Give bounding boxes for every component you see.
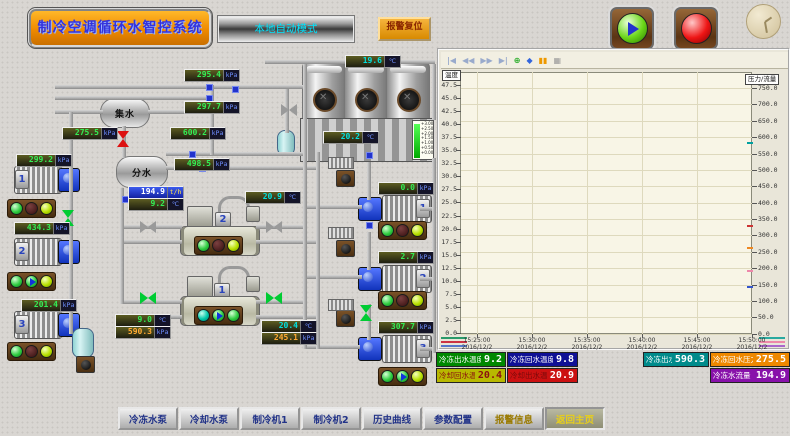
- pipe-segment: [166, 152, 306, 156]
- right-tick-label: 300.0: [758, 232, 790, 239]
- status-label: 冷冻水流量: [711, 370, 753, 381]
- right-tick-label: 750.0: [758, 85, 790, 92]
- gauge-value: 434.3: [15, 223, 53, 234]
- status-light-run: [212, 309, 225, 322]
- left-tick-label: 2.5: [439, 317, 457, 324]
- toolbar-first-icon[interactable]: |◀: [447, 56, 456, 65]
- right-tick-label: 450.0: [758, 183, 790, 190]
- toolbar-pause-icon[interactable]: ▮▮: [539, 56, 548, 65]
- status-light-on: [381, 370, 394, 383]
- pipe-segment: [367, 162, 371, 200]
- status-light-off: [396, 294, 409, 307]
- tick-mark: [456, 189, 461, 190]
- tower-fan-icon: [397, 88, 421, 112]
- gridline-h: [461, 186, 752, 187]
- collector-tank-label: 集水: [115, 107, 135, 120]
- chw-pump-1-lights: [7, 199, 56, 218]
- status-light-on: [197, 239, 210, 252]
- gauge-distributor-pressure-1: 600.2kPa: [170, 127, 226, 140]
- gauge-unit: kPa: [209, 128, 225, 139]
- gauge-unit: ℃: [384, 56, 400, 67]
- filter-vessel: [72, 328, 94, 358]
- gauge-value: 498.5: [175, 159, 213, 170]
- pipe-segment: [55, 110, 103, 114]
- toolbar-grid-icon[interactable]: ▦: [553, 56, 561, 65]
- left-tick-label: 47.5: [439, 82, 457, 89]
- tick-mark: [752, 137, 757, 138]
- chw-pump-3-lights: [7, 342, 56, 361]
- tick-mark: [456, 255, 461, 256]
- x-tick-time: 15:25:00: [464, 337, 491, 344]
- chart-toolbar: |◀◀◀▶▶▶|⊕◆▮▮▦: [441, 52, 788, 69]
- gauge-unit: kPa: [60, 300, 76, 311]
- indicator-lamp-off: [336, 310, 355, 327]
- status-value: 9.2: [481, 354, 505, 365]
- gauge-unit: kPa: [223, 70, 239, 81]
- gauge-tower-inlet-temp: 19.6℃: [345, 55, 401, 68]
- tower-level-gauge: +3.00+2.50+2.00+1.50+1.00+0.50+0.00: [412, 120, 434, 160]
- gauge-value: 600.2: [171, 128, 209, 139]
- status-chw-return-pressure: 冷冻回水压力275.5: [710, 352, 790, 367]
- gauge-collector-pressure: 275.5kPa: [62, 127, 118, 140]
- gauge-value: 0.0: [379, 183, 417, 194]
- gauge-tower-basin-temp: 20.2℃: [323, 131, 379, 144]
- gauge-unit: kPa: [417, 322, 433, 333]
- gauge-value: 20.2: [324, 132, 362, 143]
- gauge-unit: ℃: [284, 192, 300, 203]
- status-label: 冷却出水温: [508, 370, 547, 381]
- cw-pump-1-lights: [378, 221, 427, 240]
- gauge-unit: kPa: [154, 327, 170, 338]
- status-light-on: [10, 345, 23, 358]
- x-tick-date: 2016/12/2: [627, 344, 658, 351]
- x-tick-date: 2016/12/2: [682, 344, 713, 351]
- right-tick-label: 700.0: [758, 101, 790, 108]
- pipe-segment: [367, 232, 371, 270]
- left-tick-label: 22.5: [439, 213, 457, 220]
- right-tick-label: 50.0: [758, 314, 790, 321]
- flex-connector: [328, 227, 354, 239]
- x-tick-date: 2016/12/2: [572, 344, 603, 351]
- left-tick-label: 17.5: [439, 239, 457, 246]
- cw-pump-3-lights: [378, 367, 427, 386]
- gauge-unit: ℃: [300, 321, 316, 332]
- status-light-off: [396, 224, 409, 237]
- gauge-cw-pump1-pressure: 0.0kPa: [378, 182, 434, 195]
- status-light-rdy: [40, 345, 53, 358]
- chiller1-box: [246, 276, 260, 292]
- tower-level-bar: [414, 124, 420, 158]
- status-chw-return-temp: 冷冻回水温度9.8: [507, 352, 578, 367]
- valve-green-icon[interactable]: [266, 292, 282, 304]
- status-value: 590.3: [672, 354, 708, 365]
- status-light-off: [212, 239, 225, 252]
- gauge-value: 9.0: [116, 315, 154, 326]
- x-tick-date: 2016/12/2: [462, 344, 493, 351]
- status-light-on: [381, 294, 394, 307]
- axis-marker: [747, 247, 753, 249]
- tick-mark: [456, 229, 461, 230]
- status-label: 冷冻出水温度: [437, 354, 481, 365]
- x-tick-time: 15:30:00: [519, 337, 546, 344]
- tick-mark: [752, 317, 757, 318]
- gauge-distributor-pressure-2: 498.5kPa: [174, 158, 230, 171]
- chiller2-box: [246, 206, 260, 222]
- gauge-unit: kPa: [223, 102, 239, 113]
- gauge-cooling-water-temp: 20.9℃: [245, 191, 301, 204]
- gridline-h: [461, 301, 752, 302]
- status-light-off: [25, 345, 38, 358]
- left-tick-label: 10.0: [439, 278, 457, 285]
- left-tick-label: 45.0: [439, 95, 457, 102]
- gauge-unit: kPa: [417, 252, 433, 263]
- pipe-segment: [305, 205, 362, 209]
- x-tick-time: 15:50:00: [739, 337, 766, 344]
- status-label: 冷冻回水压力: [711, 354, 753, 365]
- status-cw-return-temp: 冷却回水温20.4: [436, 368, 506, 383]
- pipe-sensor-icon: [366, 222, 373, 229]
- pipe-segment: [305, 275, 362, 279]
- right-tick-label: 400.0: [758, 200, 790, 207]
- gauge-value: 275.5: [63, 128, 101, 139]
- tick-mark: [697, 334, 698, 338]
- scada-main-screen: 制冷空调循环水智控系统 本地自动模式 报警复位 集水 分水 +3.00+2.50…: [0, 0, 790, 436]
- chw-pump-1-number: 1: [15, 170, 29, 189]
- process-diagram: 集水 分水 +3.00+2.50+2.00+1.50+1.00+0.50+0.0…: [0, 0, 437, 436]
- indicator-lamp-off: [336, 240, 355, 257]
- chw-pump-2-number: 2: [15, 242, 29, 261]
- status-label: 冷冻回水温度: [508, 354, 553, 365]
- tick-mark: [752, 186, 757, 187]
- gauge-value: 297.7: [185, 102, 223, 113]
- left-tick-label: 35.0: [439, 147, 457, 154]
- cw-pump-1-head: [358, 197, 382, 221]
- tick-mark: [456, 216, 461, 217]
- stop-button[interactable]: [672, 5, 720, 52]
- tick-mark: [456, 124, 461, 125]
- nav-return-home[interactable]: 返回主页: [545, 407, 605, 430]
- gauge-value: 2.7: [379, 252, 417, 263]
- status-light-teal: [197, 309, 210, 322]
- tick-mark: [456, 98, 461, 99]
- gauge-unit: kPa: [55, 155, 71, 166]
- pipe-segment: [55, 85, 303, 89]
- gridline-h: [461, 268, 752, 269]
- tick-mark: [752, 252, 757, 253]
- left-tick-label: 37.5: [439, 134, 457, 141]
- gauge-unit: kPa: [300, 333, 316, 344]
- bottom-navbar: 冷冻水泵 冷却水泵 制冷机1 制冷机2 历史曲线 参数配置 报警信息 返回主页: [118, 407, 605, 430]
- gauge-chw-supply-temp: 9.2℃: [128, 198, 184, 211]
- play-icon: [628, 22, 639, 36]
- indicator-lamp-off: [76, 356, 95, 373]
- pipe-segment: [432, 64, 436, 120]
- x-tick-time: 15:35:00: [574, 337, 601, 344]
- right-tick-label: 100.0: [758, 298, 790, 305]
- status-light-run: [25, 275, 38, 288]
- status-light-on: [227, 309, 240, 322]
- tick-mark: [642, 334, 643, 338]
- tick-mark: [752, 154, 757, 155]
- gauge-unit: kPa: [101, 128, 117, 139]
- tick-mark: [752, 104, 757, 105]
- trend-chart: |◀◀◀▶▶▶|⊕◆▮▮▦ 温度 压力/流量 750.0700.0650.060…: [437, 48, 790, 350]
- status-chw-supply-pressure: 冷冻出水压力590.3: [643, 352, 709, 367]
- status-light-off: [25, 202, 38, 215]
- status-label: 冷却回水温: [437, 370, 475, 381]
- x-tick-date: 2016/12/2: [517, 344, 548, 351]
- left-tick-label: 27.5: [439, 186, 457, 193]
- right-axis-label: 压力/流量: [745, 74, 779, 85]
- status-light-run: [396, 370, 409, 383]
- tick-mark: [752, 203, 757, 204]
- status-light-rdy: [411, 370, 424, 383]
- nav-chiller-2[interactable]: 制冷机2: [301, 407, 361, 430]
- axis-marker: [747, 142, 753, 144]
- right-tick-label: 500.0: [758, 167, 790, 174]
- gauge-value: 245.1: [262, 333, 300, 344]
- gauge-supply-header-pressure-1: 295.4kPa: [184, 69, 240, 82]
- tick-mark: [456, 150, 461, 151]
- status-value: 194.9: [753, 370, 789, 381]
- pipe-sensor-icon: [232, 86, 239, 93]
- pipe-sensor-icon: [206, 84, 213, 91]
- gauge-unit: kPa: [417, 183, 433, 194]
- gauge-unit: ℃: [362, 132, 378, 143]
- gauge-chw-pump3-pressure: 201.4kPa: [21, 299, 77, 312]
- gridline-h: [461, 104, 752, 105]
- tower-fan-icon: [313, 88, 337, 112]
- gridline-h: [461, 334, 752, 335]
- gridline-h: [461, 170, 752, 171]
- right-tick-label: 600.0: [758, 134, 790, 141]
- valve-gray-icon[interactable]: [140, 221, 156, 233]
- level-mark: +0.00: [421, 151, 433, 155]
- gauge-value: 299.2: [17, 155, 55, 166]
- gauge-chw-pump1-pressure: 299.2kPa: [16, 154, 72, 167]
- pipe-sensor-icon: [189, 151, 196, 158]
- status-light-rdy: [411, 294, 424, 307]
- pipe-segment: [256, 315, 318, 319]
- toolbar-last-icon[interactable]: ▶|: [499, 56, 508, 65]
- tick-mark: [587, 334, 588, 338]
- valve-green-icon[interactable]: [140, 292, 156, 304]
- gauge-chiller1-chw-pressure: 590.3kPa: [115, 326, 171, 339]
- left-tick-label: 7.5: [439, 291, 457, 298]
- flex-connector: [328, 157, 354, 169]
- gridline-h: [461, 137, 752, 138]
- gauge-value: 19.6: [346, 56, 384, 67]
- chiller2-number: 2: [215, 212, 231, 227]
- tick-mark: [456, 268, 461, 269]
- tick-mark: [456, 281, 461, 282]
- gauge-value: 20.9: [246, 192, 284, 203]
- left-tick-label: 25.0: [439, 199, 457, 206]
- tick-mark: [456, 333, 461, 334]
- gauge-value: 201.4: [22, 300, 60, 311]
- chiller2-compressor: [187, 206, 213, 228]
- pipe-segment: [303, 64, 307, 349]
- toolbar-rewind-icon[interactable]: ◀◀: [462, 56, 474, 65]
- gridline-h: [461, 235, 752, 236]
- gauge-cw-pump2-pressure: 2.7kPa: [378, 251, 434, 264]
- gridline-h: [461, 203, 752, 204]
- toolbar-pan-icon[interactable]: ◆: [526, 56, 532, 65]
- left-axis-label: 温度: [442, 70, 461, 81]
- status-light-on: [10, 275, 23, 288]
- x-tick-label: 15:50:002016/12/2: [724, 337, 780, 351]
- tick-mark: [456, 242, 461, 243]
- right-tick-label: 350.0: [758, 216, 790, 223]
- status-value: 275.5: [753, 354, 789, 365]
- start-lamp: [617, 13, 648, 44]
- start-button[interactable]: [608, 5, 656, 52]
- distributor-tank[interactable]: 分水: [116, 156, 168, 188]
- toolbar-forward-icon[interactable]: ▶▶: [480, 56, 492, 65]
- pipe-segment: [55, 96, 213, 100]
- tick-mark: [456, 176, 461, 177]
- tick-mark: [456, 163, 461, 164]
- x-tick-label: 15:30:002016/12/2: [504, 337, 560, 351]
- right-tick-label: 650.0: [758, 118, 790, 125]
- gridline-h: [461, 88, 752, 89]
- left-tick-label: 20.0: [439, 226, 457, 233]
- left-tick-label: 15.0: [439, 252, 457, 259]
- gridline-h: [461, 121, 752, 122]
- pipe-sensor-icon: [366, 152, 373, 159]
- x-tick-label: 15:25:002016/12/2: [449, 337, 505, 351]
- nav-cooling-water-pump[interactable]: 冷却水泵: [179, 407, 239, 430]
- tick-mark: [752, 219, 757, 220]
- status-light-rdy: [40, 275, 53, 288]
- status-light-on: [381, 224, 394, 237]
- cw-pump-3-head: [358, 337, 382, 361]
- tick-mark: [477, 334, 478, 338]
- left-tick-label: 12.5: [439, 265, 457, 272]
- valve-gray-icon[interactable]: [281, 104, 297, 116]
- axis-marker: [747, 225, 753, 227]
- pipe-segment: [256, 240, 318, 244]
- tick-mark: [456, 137, 461, 138]
- gauge-value: 307.7: [379, 322, 417, 333]
- flex-connector: [328, 299, 354, 311]
- chw-pump-3-number: 3: [15, 315, 29, 334]
- gauge-supply-header-pressure-2: 297.7kPa: [184, 101, 240, 114]
- nav-chiller-1[interactable]: 制冷机1: [240, 407, 300, 430]
- pipe-segment: [120, 188, 124, 304]
- left-tick-label: 30.0: [439, 173, 457, 180]
- chiller2-lights: [194, 236, 243, 255]
- stop-icon: [681, 13, 712, 44]
- gridline-h: [461, 219, 752, 220]
- left-tick-label: 40.0: [439, 121, 457, 128]
- pipe-segment: [122, 240, 182, 244]
- tick-mark: [456, 294, 461, 295]
- chiller1-compressor: [187, 276, 213, 298]
- nav-alarm-info[interactable]: 报警信息: [484, 407, 544, 430]
- x-tick-time: 15:40:00: [629, 337, 656, 344]
- distributor-tank-label: 分水: [132, 166, 152, 179]
- valve-red-icon[interactable]: [117, 131, 129, 147]
- gauge-chiller1-cw-pressure: 245.1kPa: [261, 332, 317, 345]
- gridline-h: [461, 285, 752, 286]
- tick-mark: [456, 202, 461, 203]
- tick-mark: [752, 121, 757, 122]
- gridline-h: [461, 317, 752, 318]
- right-tick-label: 150.0: [758, 282, 790, 289]
- gauge-value: 9.2: [129, 199, 167, 210]
- left-tick-label: 32.5: [439, 160, 457, 167]
- gauge-value: 194.9: [129, 187, 167, 198]
- valve-gray-icon[interactable]: [266, 221, 282, 233]
- status-light-rdy: [40, 202, 53, 215]
- gauge-unit: ℃: [154, 315, 170, 326]
- status-value: 20.9: [547, 370, 577, 381]
- tick-mark: [752, 235, 757, 236]
- status-cw-supply-temp: 冷却出水温20.9: [507, 368, 578, 383]
- gauge-chw-pump2-pressure: 434.3kPa: [14, 222, 70, 235]
- nav-chilled-water-pump[interactable]: 冷冻水泵: [118, 407, 178, 430]
- tick-mark: [456, 111, 461, 112]
- pipe-segment: [305, 345, 360, 349]
- toolbar-zoom-icon[interactable]: ⊕: [514, 56, 521, 65]
- tick-mark: [752, 301, 757, 302]
- tick-mark: [456, 307, 461, 308]
- tick-mark: [456, 85, 461, 86]
- left-tick-label: 0.0: [439, 330, 457, 337]
- nav-parameter-config[interactable]: 参数配置: [423, 407, 483, 430]
- axis-marker: [747, 286, 753, 288]
- cw-pump-2-lights: [378, 291, 427, 310]
- status-light-on: [10, 202, 23, 215]
- tick-mark: [456, 320, 461, 321]
- status-light-rdy: [227, 239, 240, 252]
- valve-green-icon[interactable]: [360, 305, 372, 321]
- gauge-unit: t/h: [167, 187, 183, 198]
- chiller1-lights: [194, 306, 243, 325]
- gauge-value: 20.4: [262, 321, 300, 332]
- x-tick-label: 15:40:002016/12/2: [614, 337, 670, 351]
- status-value: 20.4: [475, 370, 505, 381]
- tick-mark: [752, 88, 757, 89]
- clock-icon: [746, 4, 781, 39]
- tick-mark: [532, 334, 533, 338]
- gauge-unit: ℃: [167, 199, 183, 210]
- x-tick-label: 15:35:002016/12/2: [559, 337, 615, 351]
- status-light-rdy: [411, 224, 424, 237]
- left-tick-label: 5.0: [439, 304, 457, 311]
- x-tick-time: 15:45:00: [684, 337, 711, 344]
- axis-marker: [747, 270, 753, 272]
- status-label: 冷冻出水压力: [644, 354, 672, 365]
- nav-history-curve[interactable]: 历史曲线: [362, 407, 422, 430]
- cw-pump-2-head: [358, 267, 382, 291]
- right-tick-label: 550.0: [758, 151, 790, 158]
- gauge-cw-pump3-pressure: 307.7kPa: [378, 321, 434, 334]
- x-tick-label: 15:45:002016/12/2: [669, 337, 725, 351]
- status-chw-flow: 冷冻水流量194.9: [710, 368, 790, 383]
- tick-mark: [752, 170, 757, 171]
- gauge-unit: kPa: [53, 223, 69, 234]
- gauge-unit: kPa: [213, 159, 229, 170]
- status-value: 9.8: [553, 354, 577, 365]
- gauge-value: 590.3: [116, 327, 154, 338]
- collector-tank[interactable]: 集水: [100, 98, 150, 128]
- left-tick-label: 42.5: [439, 108, 457, 115]
- right-tick-label: 200.0: [758, 265, 790, 272]
- gridline-h: [461, 252, 752, 253]
- tick-mark: [752, 334, 753, 338]
